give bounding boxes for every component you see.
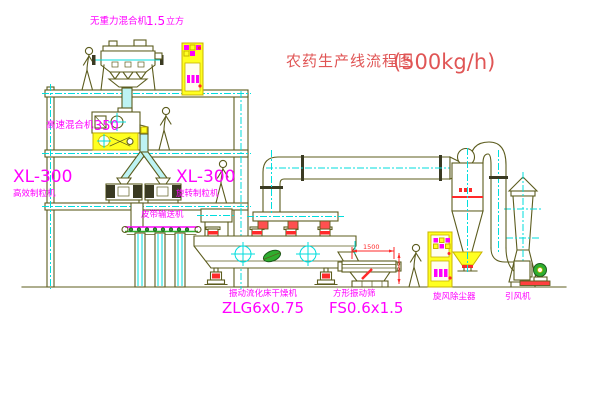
dryer-spring-supports	[205, 268, 337, 285]
indicator-light	[448, 276, 451, 279]
cad-flow-diagram: 1500 无重力混合机 1.5 立方 高速混合机 350 XL-300 高效制粒…	[0, 0, 600, 403]
worker-figure-1	[82, 47, 94, 90]
support-pillars	[135, 233, 185, 287]
worker-figure-2	[159, 107, 171, 150]
granulator-left	[106, 178, 142, 203]
label-xl300-left-model: XL-300	[13, 167, 72, 187]
label-xl300-right-name: 旋转制粒机	[176, 188, 219, 199]
label-xl300-left-name: 高效制粒机	[13, 188, 56, 199]
label-conveyor: 皮带输送机	[141, 209, 184, 220]
label-hs-mixer-name: 高速混合机	[46, 119, 94, 131]
dryer-nozzles	[206, 227, 332, 236]
indicator-light	[448, 252, 451, 255]
label-hs-mixer-value: 350	[94, 119, 119, 134]
dimension-text: 1500	[363, 243, 380, 251]
title-capacity: (500kg/h)	[393, 50, 495, 74]
control-cabinet-right	[428, 232, 452, 287]
label-top-mixer-name: 无重力混合机	[90, 15, 148, 27]
exhaust-duct-system	[247, 150, 462, 229]
diagram-title: 农药生产线流程图 (500kg/h)	[286, 50, 495, 74]
label-screen-name: 方形振动筛	[333, 288, 376, 299]
diagram-canvas: 1500 无重力混合机 1.5 立方 高速混合机 350 XL-300 高效制粒…	[0, 0, 600, 403]
label-dryer-name: 振动流化床干燥机	[229, 288, 298, 299]
indicator-light	[198, 84, 201, 87]
fluidized-bed-dryer	[194, 227, 356, 285]
gravity-mixer	[92, 40, 164, 116]
worker-figure-4	[409, 244, 421, 287]
label-xl300-right-model: XL-300	[176, 167, 235, 187]
riser-duct	[263, 157, 450, 212]
label-screen-model: FS0.6x1.5	[329, 299, 403, 317]
label-top-mixer-value: 1.5	[146, 14, 165, 28]
label-cyclone: 旋风除尘器	[433, 291, 476, 302]
label-fan: 引风机	[505, 291, 531, 302]
label-dryer-model: ZLG6x0.75	[222, 299, 304, 317]
control-cabinet-top	[182, 43, 203, 95]
label-top-mixer-unit: 立方	[166, 15, 184, 27]
indicator-light	[198, 46, 201, 49]
